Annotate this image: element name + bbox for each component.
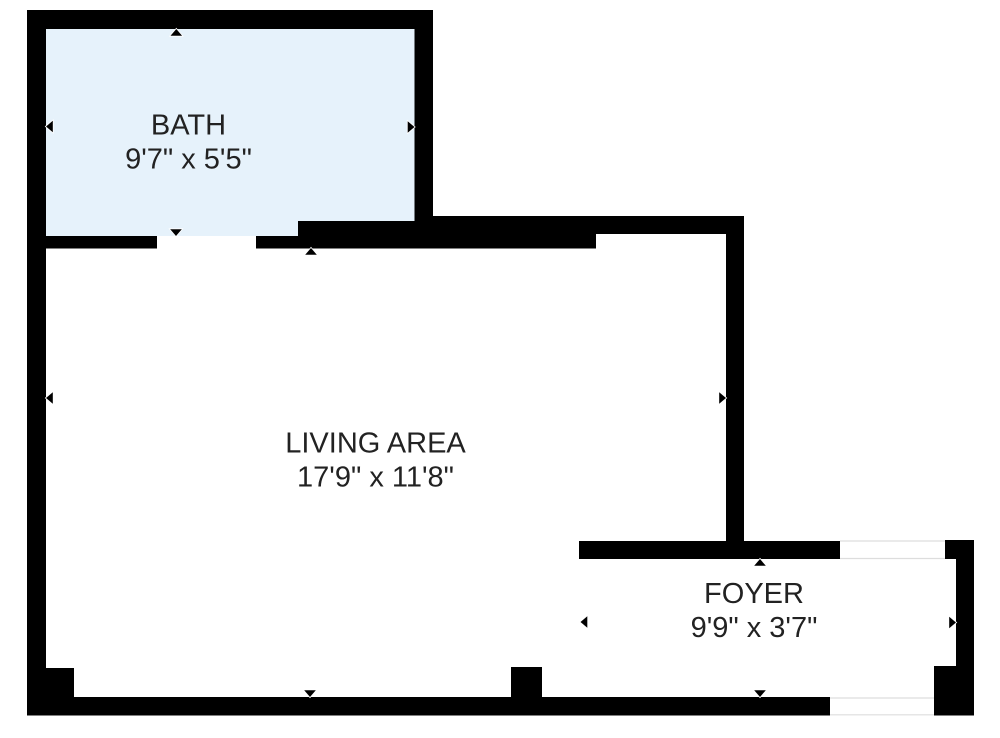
svg-text:17'9" x 11'8": 17'9" x 11'8" (297, 462, 454, 494)
svg-text:LIVING AREA: LIVING AREA (285, 428, 466, 460)
svg-text:9'7" x 5'5": 9'7" x 5'5" (125, 144, 252, 176)
svg-text:BATH: BATH (151, 110, 226, 142)
svg-text:FOYER: FOYER (704, 578, 804, 610)
svg-text:9'9" x 3'7": 9'9" x 3'7" (691, 612, 818, 644)
